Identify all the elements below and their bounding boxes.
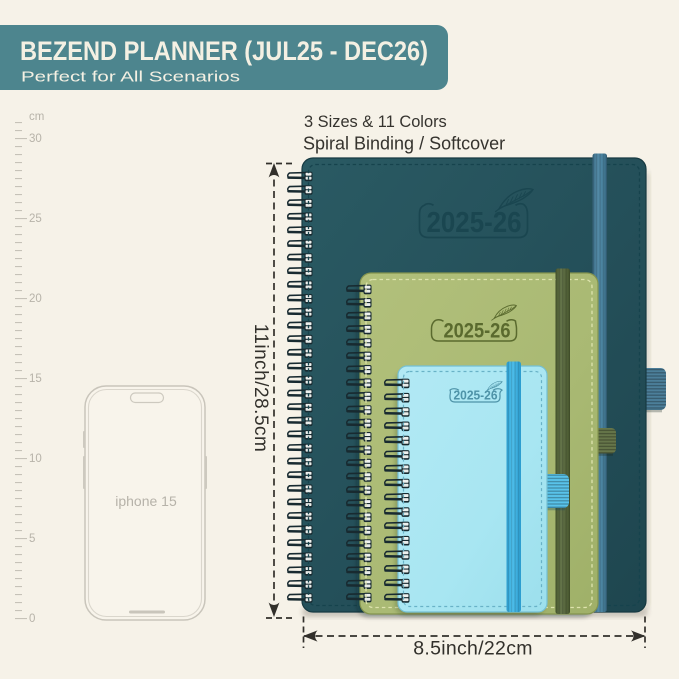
svg-text:3 Sizes & 11 Colors: 3 Sizes & 11 Colors bbox=[304, 113, 447, 131]
svg-text:Spiral Binding / Softcover: Spiral Binding / Softcover bbox=[303, 134, 505, 154]
svg-text:cm: cm bbox=[29, 111, 44, 123]
svg-text:30: 30 bbox=[29, 133, 42, 145]
svg-text:2025-26: 2025-26 bbox=[427, 207, 522, 239]
svg-text:5: 5 bbox=[29, 533, 35, 545]
svg-text:2025-26: 2025-26 bbox=[454, 389, 498, 403]
svg-text:25: 25 bbox=[29, 213, 42, 225]
svg-text:2025-26: 2025-26 bbox=[444, 320, 511, 343]
svg-text:20: 20 bbox=[29, 293, 42, 305]
svg-text:iphone 15: iphone 15 bbox=[115, 493, 177, 509]
svg-text:8.5inch/22cm: 8.5inch/22cm bbox=[413, 638, 533, 660]
svg-text:11inch/28.5cm: 11inch/28.5cm bbox=[250, 324, 271, 453]
svg-text:15: 15 bbox=[29, 373, 42, 385]
svg-text:0: 0 bbox=[29, 613, 35, 625]
svg-text:BEZEND PLANNER (JUL25 - DEC26): BEZEND PLANNER (JUL25 - DEC26) bbox=[20, 36, 428, 66]
svg-text:Perfect for All Scenarios: Perfect for All Scenarios bbox=[21, 70, 240, 86]
svg-text:10: 10 bbox=[29, 453, 42, 465]
